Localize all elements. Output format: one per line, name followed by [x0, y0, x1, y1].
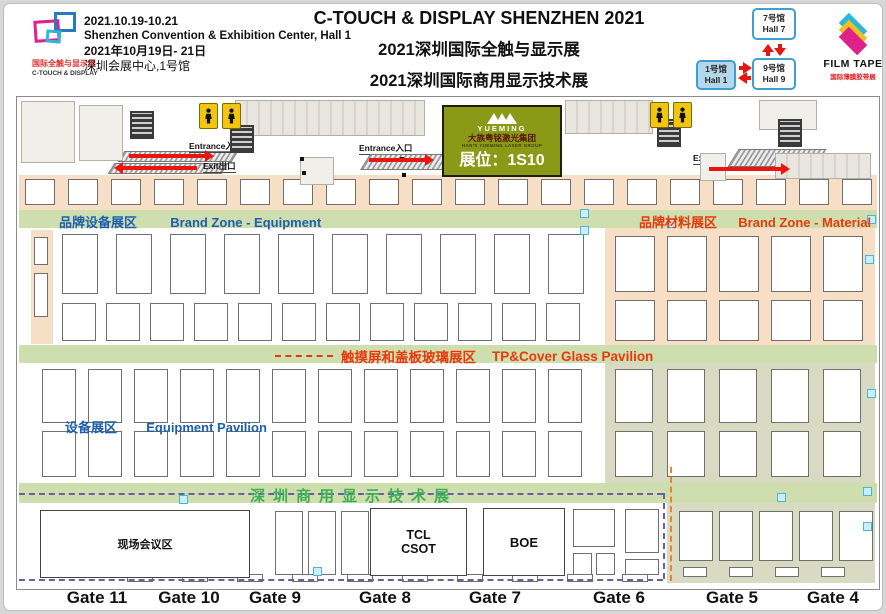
booth	[455, 179, 485, 205]
booth	[326, 303, 360, 341]
booth	[771, 431, 809, 477]
booth-boe: BOE	[483, 508, 565, 576]
booth	[275, 511, 303, 575]
booth	[625, 509, 659, 553]
zone-label-tp-cover: 触摸屏和盖板玻璃展区 TP&Cover Glass Pavilion	[275, 346, 653, 366]
gate-11-label: Gate 11	[67, 588, 128, 608]
booth	[759, 511, 793, 561]
booth	[458, 303, 492, 341]
column-dot	[300, 157, 304, 161]
yueming-mountain-icon	[485, 111, 519, 125]
entrance-mid-arrow-icon	[369, 158, 431, 162]
stairs-icon	[230, 125, 254, 153]
stairs-icon	[778, 119, 802, 147]
booth	[573, 509, 615, 547]
booth	[719, 369, 757, 423]
brand-material-cn: 品牌材料展区	[639, 215, 717, 230]
subtitle-commercial-show: 2021深圳国际商用显示技术展	[284, 67, 674, 91]
booth	[194, 303, 228, 341]
tp-cover-cn: 触摸屏和盖板玻璃展区	[341, 346, 476, 366]
booth	[68, 179, 98, 205]
booth	[238, 303, 272, 341]
booth-conference-area: 现场会议区	[40, 510, 250, 578]
booth	[308, 511, 336, 575]
exit-right-arrow-icon	[709, 167, 787, 171]
booth	[272, 431, 306, 477]
logo-square-cyan	[45, 29, 61, 43]
orange-divider-line	[670, 467, 672, 581]
column-dot	[402, 173, 406, 177]
zone-label-brand-material: 品牌材料展区 Brand Zone - Material	[639, 212, 871, 231]
map-marker	[580, 209, 589, 218]
booth	[839, 511, 873, 561]
booth	[823, 300, 863, 341]
booth	[729, 567, 753, 577]
restroom-icon	[222, 103, 241, 129]
restroom-icon	[650, 102, 669, 128]
booth	[494, 234, 530, 294]
booth	[548, 369, 582, 423]
booth	[823, 369, 861, 423]
facility-room	[21, 101, 75, 163]
booth	[771, 300, 811, 341]
subtitle-touch-show: 2021深圳国际全触与显示展	[284, 36, 674, 60]
map-marker	[179, 495, 188, 504]
booth	[799, 511, 833, 561]
booth	[625, 559, 659, 575]
booth	[180, 369, 214, 423]
booth	[240, 179, 270, 205]
booth	[541, 179, 571, 205]
booth	[546, 303, 580, 341]
title-block: C-TOUCH & DISPLAY SHENZHEN 2021 2021深圳国际…	[284, 8, 674, 91]
hall-7-en: Hall 7	[763, 24, 786, 35]
arrow-left-icon	[741, 76, 751, 80]
booth	[498, 179, 528, 205]
map-marker	[867, 389, 876, 398]
booth	[719, 236, 759, 292]
booth	[456, 431, 490, 477]
booth	[842, 179, 872, 205]
booth	[42, 431, 76, 477]
hall-nav-map: 7号馆 Hall 7 1号馆 Hall 1 9号馆 Hall 9	[694, 6, 820, 94]
hall-9-en: Hall 9	[763, 74, 786, 85]
hall-9-box: 9号馆 Hall 9	[752, 58, 796, 90]
film-tape-logo: FILM TAPE 国际薄膜胶带展	[822, 14, 883, 90]
equipment-cn: 设备展区	[65, 420, 117, 435]
booth	[667, 236, 707, 292]
booth	[414, 303, 448, 341]
booth	[683, 567, 707, 577]
booth	[667, 369, 705, 423]
booth	[116, 234, 152, 294]
floor-plan-page: 国际全触与显示展 C-TOUCH & DISPLAY 2021.10.19-10…	[3, 3, 883, 611]
red-dash-line	[275, 355, 333, 357]
tp-cover-en: TP&Cover Glass Pavilion	[492, 349, 653, 364]
exit-left-arrow-icon	[117, 166, 197, 170]
gate-7-label: Gate 7	[469, 588, 521, 608]
booth	[364, 369, 398, 423]
facility-block	[565, 100, 653, 134]
booth	[226, 431, 260, 477]
yueming-booth-no: 展位：1S10	[459, 151, 544, 171]
booth	[34, 273, 48, 317]
hall-9-cn: 9号馆	[763, 63, 785, 74]
facility-room	[79, 105, 123, 161]
film-tape-cn: 国际薄膜胶带展	[822, 71, 883, 81]
booth	[548, 431, 582, 477]
booth	[679, 511, 713, 561]
booth	[134, 369, 168, 423]
booth	[226, 369, 260, 423]
facility-block	[235, 100, 425, 136]
arrow-up-icon	[766, 46, 770, 56]
booth	[197, 179, 227, 205]
stairs-icon	[130, 111, 154, 139]
booth	[615, 236, 655, 292]
booth	[502, 303, 536, 341]
zone-label-brand-equipment: 品牌设备展区 Brand Zone - Equipment	[59, 212, 321, 231]
map-marker	[580, 226, 589, 235]
booth	[548, 234, 584, 294]
booth	[332, 234, 368, 294]
booth	[150, 303, 184, 341]
booth	[821, 567, 845, 577]
booth	[756, 179, 786, 205]
booth	[410, 369, 444, 423]
booth	[573, 553, 592, 575]
yueming-group-cn: 大族粤铭激光集团	[468, 133, 536, 143]
map-marker	[863, 487, 872, 496]
booth	[106, 303, 140, 341]
booth	[180, 431, 214, 477]
hall-1-cn: 1号馆	[705, 64, 727, 75]
column-dot	[302, 171, 306, 175]
booth	[713, 179, 743, 205]
booth	[278, 234, 314, 294]
booth	[62, 303, 96, 341]
zone-label-commercial: 深圳商用显示技术展	[250, 485, 457, 506]
gate-9-label: Gate 9	[249, 588, 301, 608]
booth	[134, 431, 168, 477]
zone-label-equipment-pavilion: 设备展区 Equipment Pavilion	[65, 417, 267, 436]
arrow-down-icon	[778, 44, 782, 54]
hall-1-en: Hall 1	[705, 75, 728, 86]
booth	[386, 234, 422, 294]
film-tape-name: FILM TAPE	[822, 58, 883, 70]
booth	[88, 431, 122, 477]
booth	[111, 179, 141, 205]
booth	[34, 237, 48, 265]
booth	[25, 179, 55, 205]
film-tape-diamonds-icon	[836, 14, 870, 54]
booth	[341, 511, 369, 575]
gate-6-label: Gate 6	[593, 588, 645, 608]
booth	[771, 236, 811, 292]
booth	[170, 234, 206, 294]
brand-equipment-cn: 品牌设备展区	[59, 215, 137, 230]
logo-square-blue	[54, 12, 76, 32]
hall-7-cn: 7号馆	[763, 13, 785, 24]
yueming-ad-banner: YUEMING 大族粤铭激光集团 HAN'S YUEMING LASER GRO…	[442, 105, 562, 177]
booth	[456, 369, 490, 423]
booth	[42, 369, 76, 423]
booth	[318, 369, 352, 423]
booth	[775, 567, 799, 577]
arrow-right-icon	[739, 66, 749, 70]
booth	[823, 236, 863, 292]
equipment-en: Equipment Pavilion	[146, 420, 267, 435]
booth	[154, 179, 184, 205]
gate-5-label: Gate 5	[706, 588, 758, 608]
booth-tcl-csot-label: TCL CSOT	[396, 528, 442, 556]
map-marker	[863, 522, 872, 531]
hall-1-box: 1号馆 Hall 1	[696, 60, 736, 90]
map-marker	[777, 493, 786, 502]
gate-10-label: Gate 10	[158, 588, 219, 608]
booth	[272, 369, 306, 423]
peach-zone-top	[19, 175, 877, 210]
entrance-left-arrow-icon	[129, 154, 211, 158]
booth	[667, 300, 707, 341]
map-marker	[313, 567, 322, 576]
restroom-icon	[673, 102, 692, 128]
booth	[410, 431, 444, 477]
booth	[502, 431, 536, 477]
commercial-boundary-right	[663, 493, 665, 579]
booth	[670, 179, 700, 205]
booth	[364, 431, 398, 477]
yueming-brand: YUEMING	[477, 125, 526, 133]
booth	[615, 369, 653, 423]
booth	[719, 511, 753, 561]
booth	[667, 431, 705, 477]
booth	[370, 303, 404, 341]
yueming-group-en: HAN'S YUEMING LASER GROUP	[462, 143, 542, 149]
booth	[771, 369, 809, 423]
booth	[627, 179, 657, 205]
commercial-boundary-bottom	[19, 579, 663, 581]
booth	[318, 431, 352, 477]
booth-tcl-csot: TCL CSOT	[370, 508, 467, 576]
booth	[719, 300, 759, 341]
gate-4-label: Gate 4	[807, 588, 859, 608]
booth	[88, 369, 122, 423]
booth	[502, 369, 536, 423]
booth	[224, 234, 260, 294]
booth	[823, 431, 861, 477]
booth	[440, 234, 476, 294]
booth	[584, 179, 614, 205]
map-marker	[865, 255, 874, 264]
hall-7-box: 7号馆 Hall 7	[752, 8, 796, 40]
booth	[62, 234, 98, 294]
brand-equipment-en: Brand Zone - Equipment	[170, 215, 321, 230]
floor-plan-map: 品牌设备展区 Brand Zone - Equipment 品牌材料展区 Bra…	[16, 96, 880, 590]
booth	[615, 431, 653, 477]
brand-material-en: Brand Zone - Material	[738, 215, 871, 230]
gate-8-label: Gate 8	[359, 588, 411, 608]
booth	[412, 179, 442, 205]
booth	[596, 553, 615, 575]
screenshot-frame: 国际全触与显示展 C-TOUCH & DISPLAY 2021.10.19-10…	[0, 0, 886, 614]
booth	[282, 303, 316, 341]
booth	[719, 431, 757, 477]
booth	[369, 179, 399, 205]
page-title: C-TOUCH & DISPLAY SHENZHEN 2021	[284, 8, 674, 29]
booth	[615, 300, 655, 341]
booth	[799, 179, 829, 205]
restroom-icon	[199, 103, 218, 129]
